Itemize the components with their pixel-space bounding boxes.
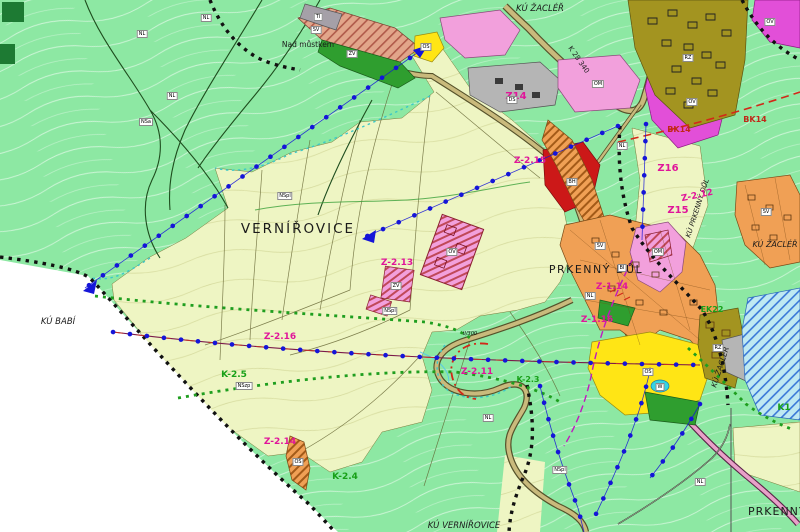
label-ku-vernirovice: KÚ VERNÍŘOVICE [428, 519, 501, 531]
label-z15: Z15 [667, 205, 688, 216]
label-z14: Z14 [505, 91, 526, 102]
label-z-1-16: Z-1.16 [581, 315, 613, 325]
label-z-2-15: Z-2.15 [514, 156, 546, 166]
label-k-2-4: K-2.4 [332, 472, 358, 482]
label-z-1-14: Z-1.14 [596, 282, 628, 292]
label-z-2-16: Z-2.16 [264, 332, 296, 342]
label-k1: K1 [777, 403, 790, 413]
label-bk14-a: BK14 [743, 115, 767, 124]
label-vernirovice: VERNÍŘOVICE [241, 220, 355, 237]
label-z-2-11: Z-2.11 [461, 367, 493, 377]
zone-z213-parcel-small [381, 266, 414, 302]
zoning-map-viewport: KÚ ŽACLÉŘ Nad můstkem VERNÍŘOVICE PRKENN… [0, 0, 800, 532]
label-ku-babi: KÚ BABÍ [41, 315, 77, 327]
label-k-2-3: K-2.3 [517, 375, 540, 384]
zoning-map: KÚ ŽACLÉŘ Nad můstkem VERNÍŘOVICE PRKENN… [0, 0, 800, 532]
label-nad-mustkem: Nad můstkem [282, 40, 334, 49]
label-z-2-14: Z-2.14 [264, 437, 296, 447]
label-ku-zacler-right: KÚ ŽACLÉŘ [752, 238, 797, 249]
label-bk14-b: BK14 [667, 125, 691, 134]
label-z16: Z16 [657, 163, 678, 174]
label-k-2-5: K-2.5 [221, 370, 247, 380]
pond-w [651, 380, 669, 392]
label-prkenny-right: PRKENNÝ [748, 505, 800, 518]
label-ku-zacler-top: KÚ ŽACLÉŘ [516, 2, 564, 14]
label-ek22: EK22 [701, 305, 724, 314]
label-prkenny-dul: PRKENNÝ DŮL [549, 263, 643, 276]
label-z-2-13: Z-2.13 [381, 258, 413, 268]
